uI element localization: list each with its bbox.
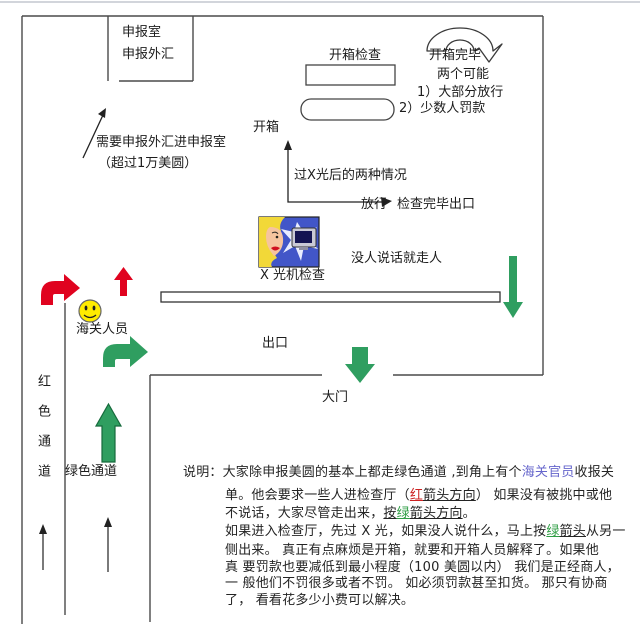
xray-operator-illustration — [259, 217, 319, 267]
open-box-done-label: 开箱完毕 — [429, 49, 481, 64]
note-line-3: 不说话，大家尽管走出来，按绿箭头方向。 — [225, 502, 476, 521]
outcome-1-label: 1）大部分放行 — [417, 86, 503, 101]
thin-arrow-red-channel-head — [39, 524, 47, 534]
thin-arrow-green-channel-head — [104, 517, 112, 527]
officer-highlight: 海关官员 — [522, 465, 575, 480]
xray-caption: X 光机检查 — [260, 269, 325, 284]
check-done-exit-label: 检查完毕出口 — [397, 198, 475, 213]
green-down-arrow-right — [503, 256, 523, 318]
note-line-8: 了， 看看花多少小费可以解决。 — [225, 589, 414, 608]
two-possibilities-label: 两个可能 — [437, 68, 489, 83]
inspection-table-1 — [306, 65, 395, 85]
declaration-note-line-1: 需要申报外汇进申报室 — [96, 136, 226, 151]
note-line-4: 如果进入检查厅，先过 X 光，如果没人说什么，马上按绿箭头从另一 — [225, 520, 626, 539]
customs-officer-label: 海关人员 — [76, 323, 128, 338]
note-label: 说明： — [183, 465, 223, 480]
after-xray-cases-label: 过X光后的两种情况 — [294, 169, 407, 184]
inspection-table-2 — [301, 99, 394, 120]
red-bend-arrow — [41, 274, 80, 305]
declaration-room-label-1: 申报室 — [122, 26, 161, 41]
green-channel-label: 绿色通道 — [65, 465, 117, 480]
declaration-room-label-2: 申报外汇 — [122, 48, 174, 63]
open-box-check-label: 开箱检查 — [329, 49, 381, 64]
green-arrow-phrase-1: 绿 — [397, 506, 410, 521]
green-up-arrow — [96, 404, 121, 462]
green-arrow-phrase-2: 绿 — [546, 524, 559, 539]
green-down-arrow-gate — [345, 347, 375, 383]
note-line-2: 单。他会要求一些人进检查厅（红箭头方向） 如果没有被挑中或他 — [225, 484, 612, 503]
elbow-arrow-up-head — [284, 140, 292, 150]
release-label: 放行 — [361, 198, 387, 213]
red-arrow-phrase: 红 — [410, 488, 423, 503]
outcome-2-label: 2）少数人罚款 — [399, 102, 485, 117]
no-talk-walk-away-label: 没人说话就走人 — [351, 252, 442, 267]
note-line-1: 说明：大家除申报美圆的基本上都走绿色通道 ,到角上有个海关官员收报关 — [183, 461, 614, 480]
green-bend-arrow — [103, 336, 148, 367]
conveyor-belt — [161, 292, 500, 302]
exit-label: 出口 — [262, 337, 288, 352]
red-channel-label: 红色通道 — [34, 374, 49, 494]
red-up-arrow — [114, 267, 133, 296]
declaration-note-line-2: （超过1万美圆） — [98, 157, 197, 172]
smiley-face-icon — [79, 300, 101, 322]
open-box-label: 开箱 — [253, 121, 279, 136]
gate-label: 大门 — [322, 391, 348, 406]
customs-flow-diagram: 申报室 申报外汇 需要申报外汇进申报室 （超过1万美圆） 开箱检查 开箱完毕 两… — [0, 0, 640, 632]
